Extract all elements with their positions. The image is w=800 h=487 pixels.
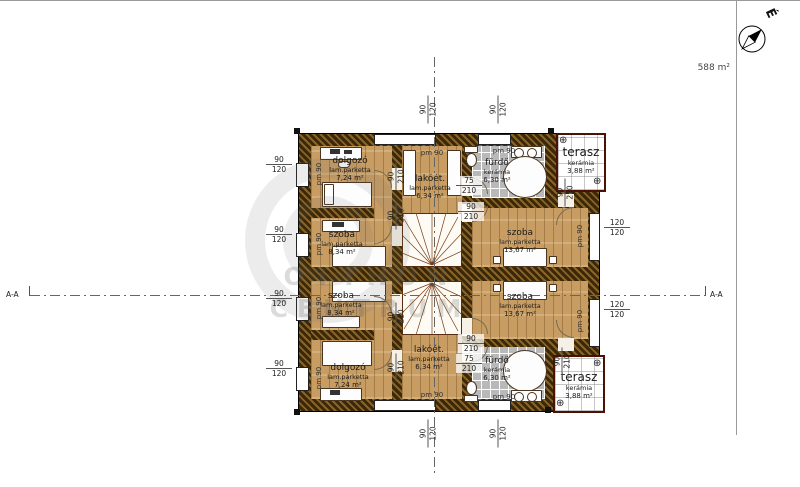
parapet-label: pm 90 bbox=[315, 293, 323, 323]
toilet-tank bbox=[464, 146, 478, 153]
parapet-label: pm 90 bbox=[576, 306, 584, 336]
dim-height: 210 bbox=[458, 211, 484, 221]
nightstand bbox=[549, 284, 557, 292]
window bbox=[589, 299, 600, 347]
dim-width: 90 bbox=[387, 163, 396, 191]
room-name: lakóét. bbox=[399, 174, 461, 184]
corner-mark bbox=[294, 409, 300, 415]
corner-mark bbox=[545, 407, 551, 413]
room-label-lakoet-upper: lakóét. lam.parketta 6,34 m² bbox=[399, 174, 461, 201]
room-floor: lam.parketta bbox=[399, 184, 461, 192]
room-floor: kerámia bbox=[556, 159, 606, 167]
dim-window-90x120: 90120 bbox=[419, 96, 438, 124]
window bbox=[374, 134, 436, 145]
dim-door-90x210: 90210 bbox=[458, 202, 484, 221]
dim-door-90x210: 90210 bbox=[387, 202, 406, 230]
dim-width: 90 bbox=[489, 420, 498, 448]
dim-window-90x120: 90120 bbox=[489, 420, 508, 448]
toilet bbox=[466, 381, 477, 395]
dim-width: 90 bbox=[387, 303, 396, 331]
dim-height: 120 bbox=[428, 420, 438, 448]
dim-height: 210 bbox=[396, 303, 406, 331]
dim-door-75x210: 75210 bbox=[456, 176, 482, 195]
room-area: 13,67 m² bbox=[489, 246, 551, 255]
window bbox=[374, 400, 436, 411]
window bbox=[296, 367, 309, 391]
dim-height: 120 bbox=[266, 164, 292, 174]
room-area: 6,34 m² bbox=[398, 363, 460, 372]
parapet-label: pm 90 bbox=[576, 221, 584, 251]
parapet-label: pm 90 bbox=[489, 393, 519, 401]
room-name: fürdő bbox=[466, 158, 528, 168]
room-area: 3,88 m² bbox=[556, 167, 606, 176]
dim-width: 75 bbox=[456, 354, 482, 363]
drain-icon: ⊕ bbox=[593, 177, 601, 187]
corner-mark bbox=[548, 128, 554, 134]
property-boundary-line-top bbox=[0, 0, 737, 1]
dim-width: 90 bbox=[458, 334, 484, 343]
room-area: 7,24 m² bbox=[319, 174, 381, 183]
dim-door-90x210: 90210 bbox=[556, 179, 575, 207]
dim-height: 210 bbox=[458, 343, 484, 353]
room-name: terasz bbox=[556, 146, 606, 159]
dim-window-120x120: 120120 bbox=[604, 300, 630, 319]
dim-height: 120 bbox=[498, 420, 508, 448]
dim-height: 120 bbox=[428, 96, 438, 124]
dim-window-90x120: 90120 bbox=[419, 420, 438, 448]
dim-height: 210 bbox=[396, 202, 406, 230]
room-label-lakoet-lower: lakóét. lam.parketta 6,34 m² bbox=[398, 345, 460, 372]
room-label-szoba-large-lower: szoba lam.parketta 13,67 m² bbox=[489, 292, 551, 319]
dim-width: 90 bbox=[387, 354, 396, 382]
room-name: dolgozó bbox=[319, 156, 381, 166]
room-name: dolgozó bbox=[317, 363, 379, 373]
dim-width: 90 bbox=[266, 155, 292, 164]
section-tick-left bbox=[29, 286, 30, 296]
dim-height: 120 bbox=[266, 298, 292, 308]
section-label-left: A-A bbox=[6, 290, 19, 299]
room-area: 7,24 m² bbox=[317, 381, 379, 390]
dim-height: 210 bbox=[565, 179, 575, 207]
dim-door-90x210: 90210 bbox=[387, 303, 406, 331]
room-area: 13,67 m² bbox=[489, 310, 551, 319]
dim-width: 90 bbox=[419, 420, 428, 448]
window bbox=[478, 400, 511, 411]
wall-lower-left bbox=[311, 330, 374, 340]
room-floor: lam.parketta bbox=[317, 373, 379, 381]
dim-width: 90 bbox=[266, 359, 292, 368]
dim-width: 120 bbox=[604, 300, 630, 309]
corner-mark bbox=[294, 128, 300, 134]
room-floor: kerámia bbox=[553, 384, 605, 392]
room-name: lakóét. bbox=[398, 345, 460, 355]
dim-window-90x120: 90120 bbox=[266, 359, 292, 378]
dim-width: 90 bbox=[419, 96, 428, 124]
dim-window-90x120: 90120 bbox=[266, 225, 292, 244]
dim-width: 90 bbox=[556, 179, 565, 207]
dim-width: 90 bbox=[266, 289, 292, 298]
sink bbox=[527, 392, 537, 402]
dim-height: 210 bbox=[456, 363, 482, 373]
dim-width: 90 bbox=[489, 96, 498, 124]
room-floor: kerámia bbox=[466, 168, 528, 176]
dim-height: 120 bbox=[266, 234, 292, 244]
property-boundary-line-right bbox=[736, 0, 737, 435]
parapet-label: pm 90 bbox=[315, 363, 323, 393]
drain-icon: ⊕ bbox=[593, 359, 601, 369]
dim-height: 120 bbox=[604, 309, 630, 319]
desk-item bbox=[330, 149, 340, 154]
room-floor: lam.parketta bbox=[489, 238, 551, 246]
floor-plan-canvas: 588 m² É A-A A-A ⊕ ⊕ ⊕ ⊕ bbox=[0, 0, 800, 487]
dim-height: 120 bbox=[266, 368, 292, 378]
dim-width: 90 bbox=[266, 225, 292, 234]
dim-window-90x120: 90120 bbox=[489, 96, 508, 124]
room-area: 6,30 m² bbox=[466, 374, 528, 383]
parapet-label: pm 90 bbox=[417, 149, 447, 157]
site-area-label: 588 m² bbox=[640, 63, 730, 73]
dim-height: 210 bbox=[396, 163, 406, 191]
section-label-right: A-A bbox=[710, 290, 723, 299]
dim-door-90x210: 90210 bbox=[458, 334, 484, 353]
desk-item bbox=[344, 150, 352, 154]
window bbox=[478, 134, 511, 145]
room-label-terasz-upper: terasz kerámia 3,88 m² bbox=[556, 146, 606, 176]
dim-height: 210 bbox=[396, 354, 406, 382]
toilet-tank bbox=[464, 395, 478, 402]
parapet-label: pm 90 bbox=[315, 159, 323, 189]
dim-door-90x210: 90210 bbox=[387, 354, 406, 382]
dim-width: 90 bbox=[458, 202, 484, 211]
dim-height: 210 bbox=[456, 185, 482, 195]
room-label-dolgozo-upper: dolgozó lam.parketta 7,24 m² bbox=[319, 156, 381, 183]
dim-width: 120 bbox=[604, 218, 630, 227]
dim-door-75x210: 75210 bbox=[456, 354, 482, 373]
dim-window-90x120: 90120 bbox=[266, 155, 292, 174]
room-name: szoba bbox=[489, 292, 551, 302]
room-floor: lam.parketta bbox=[319, 166, 381, 174]
dim-door-90x210: 90210 bbox=[553, 348, 572, 376]
dim-width: 90 bbox=[387, 202, 396, 230]
dim-width: 90 bbox=[553, 348, 562, 376]
window bbox=[589, 213, 600, 261]
room-name: szoba bbox=[489, 228, 551, 238]
room-label-szoba-large-upper: szoba lam.parketta 13,67 m² bbox=[489, 228, 551, 255]
dim-window-120x120: 120120 bbox=[604, 218, 630, 237]
room-floor: lam.parketta bbox=[398, 355, 460, 363]
room-floor: lam.parketta bbox=[489, 302, 551, 310]
watermark-line1: OTTHON bbox=[245, 262, 495, 291]
dim-height: 210 bbox=[562, 348, 572, 376]
dim-height: 120 bbox=[498, 96, 508, 124]
parapet-label: pm 90 bbox=[489, 147, 519, 155]
room-label-terasz-lower: terasz kerámia 3,88 m² bbox=[553, 371, 605, 401]
north-label: É bbox=[762, 6, 779, 20]
compass-icon bbox=[737, 24, 767, 54]
desk-item bbox=[330, 390, 340, 395]
room-label-dolgozo-lower: dolgozó lam.parketta 7,24 m² bbox=[317, 363, 379, 390]
dim-window-90x120: 90120 bbox=[266, 289, 292, 308]
parapet-label: pm 90 bbox=[315, 229, 323, 259]
parapet-label: pm 90 bbox=[417, 391, 447, 399]
dim-width: 75 bbox=[456, 176, 482, 185]
section-tick-right bbox=[705, 286, 706, 296]
dim-height: 120 bbox=[604, 227, 630, 237]
dim-door-90x210: 90210 bbox=[387, 163, 406, 191]
nightstand bbox=[549, 256, 557, 264]
staircase-upper bbox=[402, 213, 462, 267]
room-area: 3,88 m² bbox=[553, 392, 605, 401]
room-area: 6,34 m² bbox=[399, 192, 461, 201]
